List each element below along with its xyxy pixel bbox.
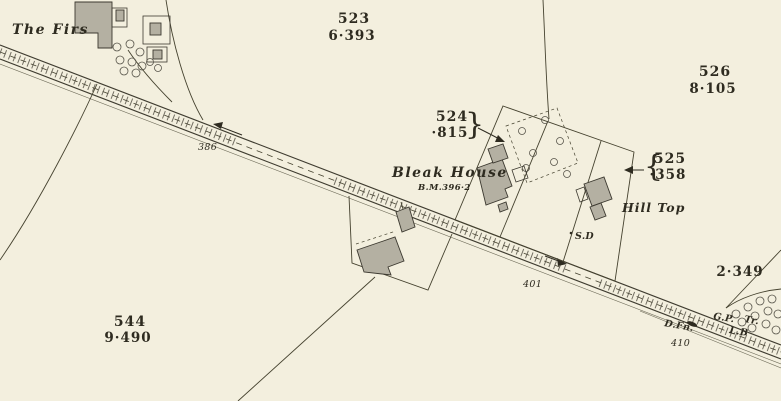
benchmark-label: B.M.396·2 (417, 183, 471, 193)
parcel-523-number: 523 (338, 11, 370, 27)
road-level-401: 401 (522, 279, 542, 290)
trough-label: Tr. (744, 314, 760, 327)
parcel-524-acreage: ·815 (432, 125, 469, 141)
road-level-386: 386 (198, 142, 217, 153)
bleak-house-label: Bleak House (391, 165, 508, 181)
os-map-svg: } { The Firs 523 6·393 526 8·105 524 ·81… (0, 0, 781, 401)
parcel-526-number: 526 (699, 64, 731, 80)
parcel-525-acreage: ·358 (650, 167, 687, 183)
parcel-525-number: 525 (654, 151, 686, 167)
hill-top-label: Hill Top (621, 200, 685, 215)
parcel-544-acreage: 9·490 (104, 330, 151, 346)
outbuilding (116, 10, 124, 21)
sundial-point-icon (570, 232, 573, 235)
map-canvas[interactable]: } { The Firs 523 6·393 526 8·105 524 ·81… (0, 0, 781, 401)
outbuilding (150, 23, 161, 35)
outbuilding (153, 50, 162, 59)
road-level-410: 410 (670, 338, 690, 349)
sundial-label: S.D (575, 231, 594, 242)
parcel-east-acreage: 2·349 (716, 264, 763, 280)
parcel-523-acreage: 6·393 (328, 28, 375, 44)
parcel-526-acreage: 8·105 (689, 81, 736, 97)
parcel-544-number: 544 (114, 314, 146, 330)
the-firs-label: The Firs (12, 22, 89, 38)
parcel-524-number: 524 (436, 109, 468, 125)
